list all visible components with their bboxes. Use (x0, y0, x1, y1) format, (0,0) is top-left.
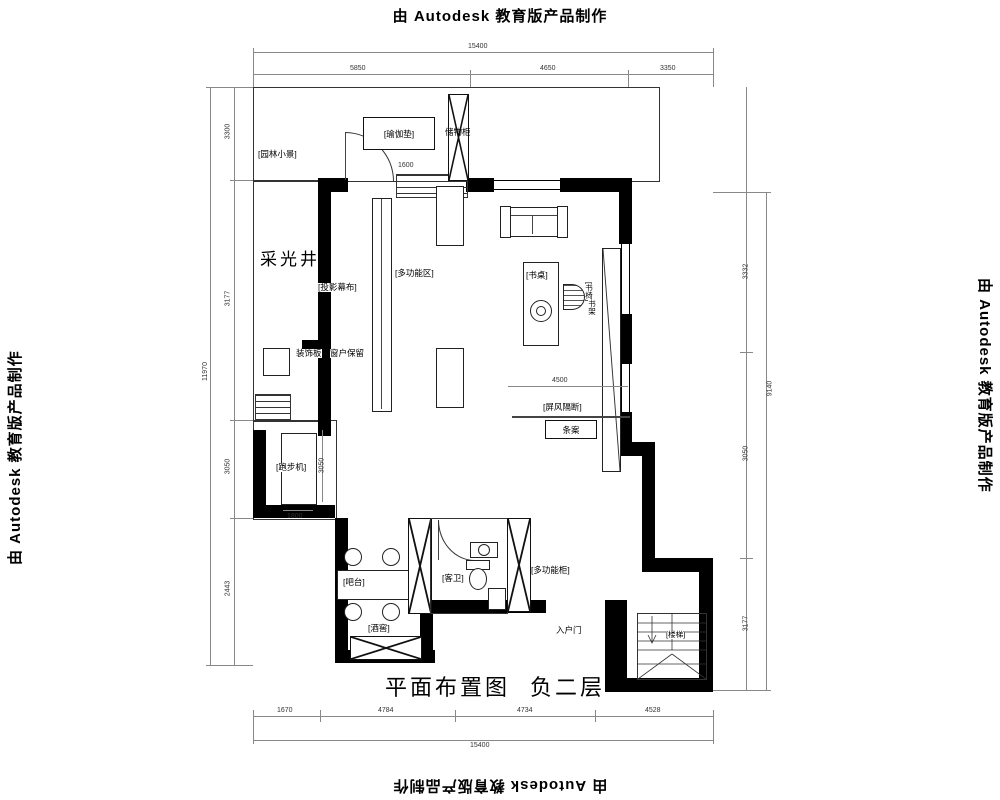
sofa-armrest (557, 206, 568, 238)
dim-right-overall: 9140 (766, 381, 773, 397)
wall (560, 178, 632, 192)
window (494, 180, 560, 190)
yoga-mat: [瑜伽垫] (363, 117, 435, 150)
screen-partition-label: [屏风隔断] (543, 403, 582, 412)
wall (605, 600, 627, 692)
multi-cabinet-label: [多功能柜] (531, 566, 570, 575)
side-table (263, 348, 290, 376)
speaker-cabinet (436, 186, 464, 246)
watermark-bottom: 由 Autodesk 教育版产品制作 (393, 776, 608, 797)
sofa-armrest (500, 206, 511, 238)
dim-tick (455, 710, 456, 722)
dim-bottom-seg3: 4734 (517, 707, 533, 714)
dim-left-seg2: 3177 (224, 291, 231, 307)
dim-tick (253, 710, 254, 744)
dim-line (508, 386, 628, 387)
speaker-cabinet (436, 348, 464, 408)
dim-tick (628, 70, 629, 87)
projector-screen-line (381, 199, 382, 409)
dim-line (210, 87, 211, 665)
watermark-right: 由 Autodesk 教育版产品制作 (975, 278, 996, 493)
plan-floor: 负二层 (530, 670, 605, 702)
sofa-seam (532, 216, 533, 234)
dim-line (253, 74, 713, 75)
projector-screen (372, 198, 392, 412)
wall (642, 442, 655, 558)
dim-tick (595, 710, 596, 722)
treadmill-label: [跑步机] (276, 463, 306, 472)
dim-tick (713, 690, 771, 691)
sofa-back-line (503, 215, 563, 216)
bar-label: [吧台] (343, 578, 365, 587)
dim-bottom-overall: 15400 (470, 742, 489, 749)
dim-top-seg2: 4650 (540, 65, 556, 72)
entry-door-label: 入户门 (556, 626, 582, 635)
dim-bottom-seg1: 1670 (277, 707, 293, 714)
plan-title: 平面布置图 (385, 670, 510, 702)
dim-left-seg1: 3300 (224, 124, 231, 140)
dim-tick (253, 48, 254, 87)
stairs-label: [楼梯] (666, 631, 685, 639)
dim-treadmill-depth: 3050 (318, 458, 325, 474)
light-well-label: 采光井 (260, 251, 320, 268)
dim-line (766, 192, 767, 690)
column (507, 518, 531, 612)
dim-tick (230, 518, 253, 519)
watermark-left: 由 Autodesk 教育版产品制作 (4, 350, 25, 565)
dim-line (283, 510, 313, 511)
dim-right-seg3: 3177 (742, 616, 749, 632)
dim-tick (320, 710, 321, 722)
bar-stool (344, 548, 362, 566)
guest-chair (563, 284, 585, 310)
dim-tick (230, 420, 253, 421)
light-well-outline (253, 180, 322, 422)
bar-stool (382, 548, 400, 566)
column (408, 518, 432, 614)
console-table: 条案 (545, 420, 597, 439)
dim-right-seg1: 3332 (742, 264, 749, 280)
dim-line (253, 740, 713, 741)
dim-door-width: 1600 (398, 162, 414, 169)
dim-line (253, 716, 713, 717)
projector-screen-label: [投影幕布] (318, 283, 357, 292)
dim-tick (740, 352, 753, 353)
window-keep-label: 窗户保留 (330, 349, 364, 358)
wall (318, 178, 348, 192)
dim-line (746, 87, 747, 690)
wine-rack (350, 636, 422, 660)
desk-chair-symbol-inner (536, 306, 546, 316)
storage-column (448, 94, 469, 181)
dim-tick (470, 70, 471, 87)
dim-tick (740, 558, 753, 559)
multi-area-label: [多功能区] (395, 269, 434, 278)
dim-tick (230, 180, 253, 181)
dim-left-seg4: 2443 (224, 581, 231, 597)
yoga-mat-label: [瑜伽垫] (384, 128, 414, 140)
drawing-sheet: 由 Autodesk 教育版产品制作 由 Autodesk 教育版产品制作 由 … (0, 0, 1000, 800)
desk-chair-label: [书椅] (585, 282, 593, 301)
bookshelf-label: 书架 (588, 300, 596, 315)
dim-top-seg3: 3350 (660, 65, 676, 72)
dim-line (234, 87, 235, 665)
dim-left-overall: 11970 (202, 362, 209, 381)
desk-label: [书桌] (526, 271, 548, 280)
bath-cabinet (488, 588, 506, 610)
dim-bottom-seg2: 4784 (378, 707, 394, 714)
dim-tick (713, 48, 714, 87)
toilet-bowl (469, 568, 487, 590)
bar-stool (382, 603, 400, 621)
basin-bowl (478, 544, 490, 556)
dim-study-width: 4500 (552, 377, 568, 384)
bookshelf (602, 248, 621, 472)
dim-left-seg3: 3050 (224, 459, 231, 475)
watermark-top: 由 Autodesk 教育版产品制作 (393, 5, 608, 26)
window (621, 244, 630, 314)
console-table-label: 条案 (562, 424, 579, 436)
dim-top-seg1: 5850 (350, 65, 366, 72)
deco-board-label: 装饰板 (296, 349, 322, 358)
wall (619, 192, 632, 244)
dim-tick (713, 710, 714, 744)
guest-bath-label: [客卫] (442, 574, 464, 583)
dim-bottom-seg4: 4528 (645, 707, 661, 714)
light-well-steps (255, 394, 291, 420)
garden-label: [园林小景] (258, 150, 297, 159)
dim-treadmill-width: 1800 (287, 513, 303, 520)
wall (466, 178, 494, 192)
dim-top-overall: 15400 (468, 43, 487, 50)
storage-cabinet-label: 储物柜 (445, 128, 471, 137)
bar-stool (344, 603, 362, 621)
dim-line (253, 52, 713, 53)
stairs (637, 613, 707, 680)
dim-tick (206, 87, 253, 88)
wine-cellar-label: [酒窖] (368, 624, 390, 633)
dim-tick (206, 665, 253, 666)
wall (318, 353, 331, 436)
window (621, 364, 630, 412)
dim-tick (713, 192, 771, 193)
screen-partition-line (512, 416, 630, 418)
dim-right-seg2: 3050 (742, 446, 749, 462)
